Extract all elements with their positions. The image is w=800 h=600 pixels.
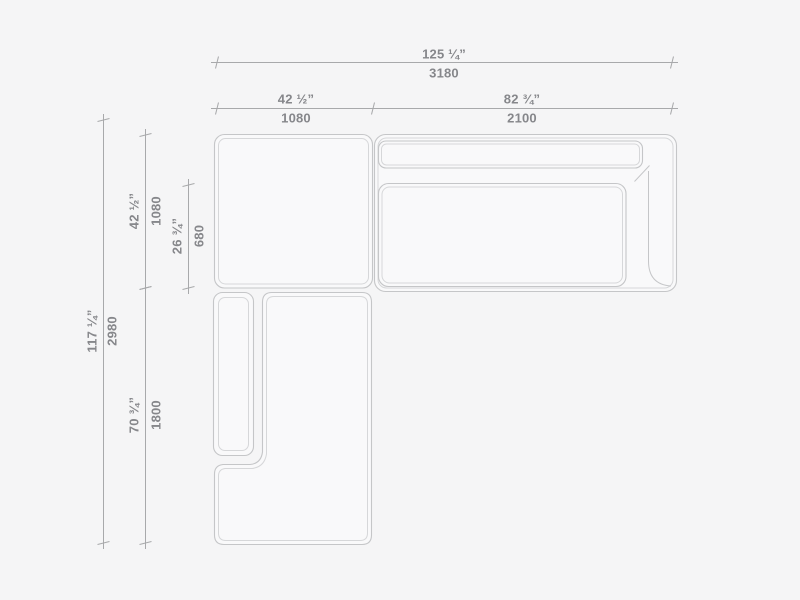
- label-left-width-inches: 42 ½”: [278, 93, 314, 106]
- label-left-width-mm: 1080: [281, 112, 311, 125]
- label-total-width-inches: 125 ¼”: [422, 48, 466, 61]
- sofa-dimension-diagram: 125 ¼” 3180 42 ½” 1080 82 ¾” 2100 117 ¼”…: [0, 0, 800, 600]
- module-right-back-cushion: [379, 141, 643, 168]
- label-corner-depth-inches: 42 ½”: [128, 193, 141, 229]
- label-right-width-inches: 82 ¾”: [504, 93, 540, 106]
- module-right-seat-cushion: [379, 184, 627, 287]
- label-seat-depth-mm: 680: [193, 225, 206, 247]
- module-chaise: [214, 293, 372, 545]
- label-chaise-length-inches: 70 ¾”: [128, 397, 141, 433]
- label-total-depth-inches: 117 ¼”: [86, 309, 99, 352]
- label-total-width-mm: 3180: [429, 67, 459, 80]
- module-right-sofa: [375, 135, 677, 292]
- module-corner: [215, 135, 373, 289]
- label-seat-depth-inches: 26 ¾”: [171, 218, 184, 254]
- label-corner-depth-mm: 1080: [150, 196, 163, 226]
- module-corner-outline: [215, 135, 373, 289]
- label-total-depth-mm: 2980: [106, 316, 119, 346]
- technical-drawing-canvas: [0, 0, 800, 600]
- label-right-width-mm: 2100: [507, 112, 537, 125]
- label-chaise-length-mm: 1800: [150, 400, 163, 430]
- module-chaise-back-cushion: [214, 293, 254, 456]
